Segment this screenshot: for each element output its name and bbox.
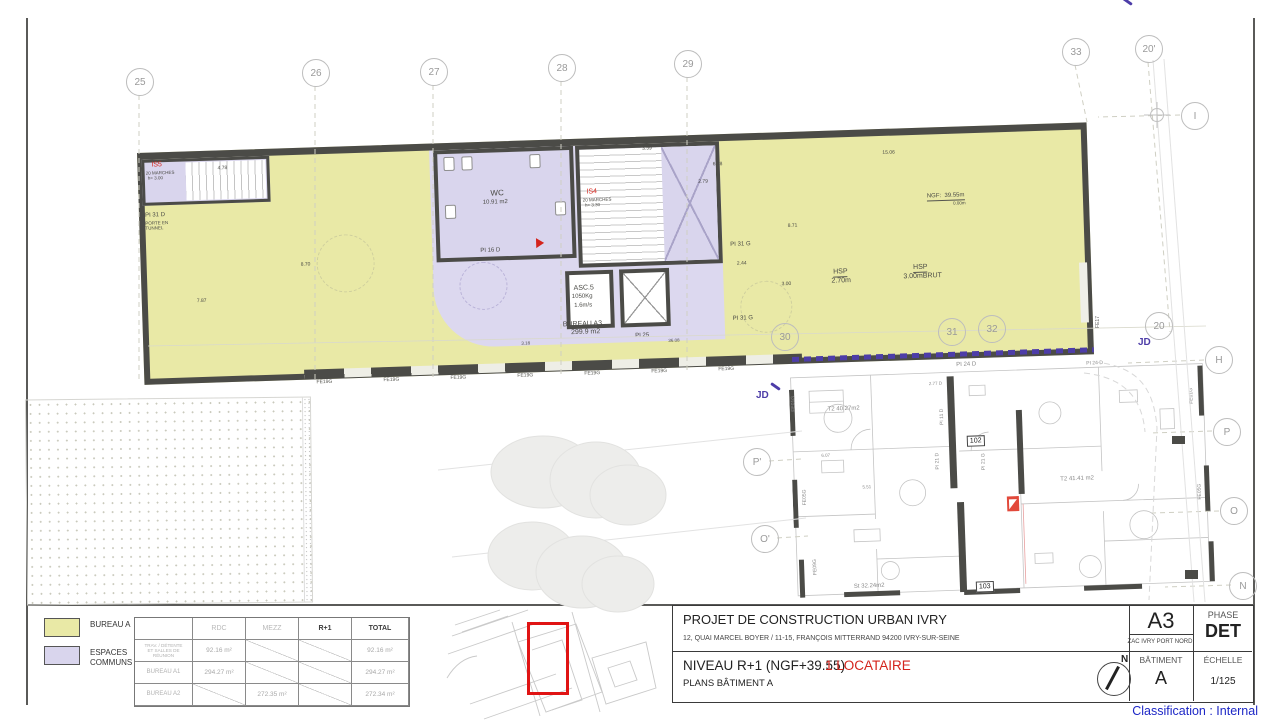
table-cell (193, 684, 246, 706)
plan-annotation: 3.59 (642, 146, 652, 152)
phase-label: PHASE (1193, 610, 1253, 620)
plan-annotation: PI 25 (635, 333, 649, 340)
grid-bubble-26: 26 (302, 59, 330, 87)
table-cell: 272.34 m² (352, 684, 409, 706)
table-row-label: BUREAU A2 (135, 684, 193, 706)
apartment-annotation: 103 (976, 581, 994, 593)
building-a: IS520 MARCHESh= 3.004.78PI 31 DPORTE EN … (137, 122, 1094, 399)
plan-annotation: 1050Kg (572, 293, 593, 300)
apartment-annotation: FE05G (1197, 484, 1203, 500)
apartment-annotation: 6.07 (821, 453, 830, 458)
grid-bubble-32: 32 (978, 315, 1006, 343)
plan-annotation: 8.70 (301, 262, 311, 268)
plan-annotation: 10.91 m2 (483, 199, 508, 207)
legend: BUREAU AESPACES COMMUNS (44, 618, 132, 676)
level-title: NIVEAU R+1 (NGF+39.55) (683, 658, 845, 673)
plan-annotation: 7.87 (197, 299, 207, 305)
red-arrow-marker (536, 238, 544, 248)
jd-arrow (770, 382, 781, 391)
echelle-label: ÉCHELLE (1193, 655, 1253, 665)
plan-annotation: WC (490, 189, 504, 198)
batiment-value: A (1129, 668, 1193, 689)
plan-annotation: HSP (833, 268, 848, 277)
zac-label: ZAC IVRY PORT NORD (1127, 639, 1193, 645)
plan-annotation: 299.9 m2 (571, 328, 600, 337)
phase-value: DET (1193, 621, 1253, 642)
plan-annotation: 15.06 (882, 151, 895, 157)
legend-item: BUREAU A (44, 618, 132, 637)
toilet-icon (443, 157, 454, 171)
tenant-note: 1 LOCATAIRE (825, 658, 911, 673)
plan-annotation: 2.44 (737, 261, 747, 267)
plan-annotation: h= 3.30 (585, 202, 600, 208)
floor-plan-sheet: IS520 MARCHESh= 3.004.78PI 31 DPORTE EN … (0, 0, 1280, 720)
grid-bubble-25: 25 (126, 68, 154, 96)
red-highlight-rect (527, 622, 569, 695)
table-cell (246, 662, 299, 684)
table-cell: 92.16 m² (352, 640, 409, 662)
grid-bubble-31: 31 (938, 318, 966, 346)
toilet-icon (555, 201, 566, 215)
plan-annotation: 3.00mBRUT (903, 272, 942, 281)
sheet-border-right (1253, 18, 1255, 705)
plan-annotation: h= 3.00 (148, 175, 163, 181)
apartment-annotation: 5.51 (862, 484, 871, 489)
plan-annotation: PI 31 G (733, 315, 754, 322)
window-label: FE19G (383, 378, 399, 384)
plan-annotation: 4.78 (217, 166, 227, 172)
table-cell: 294.27 m² (352, 662, 409, 684)
window-label: FE19G (450, 375, 466, 381)
plan-annotation: 1.6m/s (574, 302, 592, 309)
plan-annotation: 8.71 (788, 224, 798, 230)
plan-annotation: PORTE EN TUNNEL (145, 220, 168, 231)
apartment-annotation: FE09G (813, 559, 819, 575)
grid-bubble-I: I (1181, 102, 1209, 130)
grid-bubble-O': O' (751, 525, 779, 553)
plan-annotation: PI 16 D (480, 247, 500, 254)
apartment-annotation: FE01G (791, 396, 797, 412)
window-label: FE19G (718, 367, 734, 373)
apartment-annotation: T2 41.41 m2 (1060, 475, 1094, 483)
table-cell (299, 640, 352, 662)
apartment-linework (788, 347, 1216, 602)
jd-label-left: JD (756, 390, 769, 401)
jd-label-right: JD (1138, 337, 1151, 348)
grid-bubble-H: H (1205, 346, 1233, 374)
grid-bubble-28: 28 (548, 54, 576, 82)
north-compass-icon (1097, 662, 1131, 696)
grid-bubble-N: N (1229, 572, 1257, 600)
apartment-annotation: PI 11 D (940, 409, 946, 425)
batiment-label: BÂTIMENT (1129, 655, 1193, 665)
legend-item-label: ESPACES COMMUNS (90, 646, 132, 667)
table-header: MEZZ (246, 618, 299, 640)
table-header: TOTAL (352, 618, 409, 640)
legend-swatch (44, 618, 80, 637)
apartment-annotation: T2 40.27m2 (828, 406, 860, 414)
apartment-annotation: 102 (967, 435, 985, 447)
area-table: RDCMEZZR+1TOTALTRAV. / DÉTENTE ET SALLES… (134, 617, 410, 707)
grid-bubble-20': 20' (1135, 35, 1163, 63)
apartment-annotation: PI 21 G (981, 453, 987, 470)
table-cell (299, 662, 352, 684)
plan-annotation: IS5 (151, 161, 162, 169)
title-block: PROJET DE CONSTRUCTION URBAN IVRY 12, QU… (672, 605, 1254, 703)
plan-annotation: PI 31 D (145, 212, 165, 219)
sheet-code: A3 (1129, 608, 1193, 634)
classification-label: Classification : Internal (998, 704, 1258, 718)
grid-bubble-33: 33 (1062, 38, 1090, 66)
legend-item: ESPACES COMMUNS (44, 646, 132, 667)
toilet-icon (461, 156, 472, 170)
echelle-value: 1/125 (1193, 676, 1253, 687)
grid-bubble-P: P (1213, 418, 1241, 446)
apartment-annotation: 2.77 D (929, 381, 942, 386)
toilet-icon (445, 205, 456, 219)
plan-annotation: 6.78 (713, 162, 723, 168)
window-label: FE19G (517, 373, 533, 379)
elevator-shaft (619, 268, 671, 328)
plan-annotation: 3.18 (521, 340, 530, 345)
window-label: FE19G (584, 371, 600, 377)
apartment-annotation: FE05G (802, 489, 808, 505)
fe17-label: FE17 (1096, 316, 1102, 328)
plan-annotation: HSP (913, 264, 928, 273)
stair-is4-landing (661, 145, 719, 261)
project-title: PROJET DE CONSTRUCTION URBAN IVRY (683, 612, 947, 627)
table-cell: 92.16 m² (193, 640, 246, 662)
table-row-label: TRAV. / DÉTENTE ET SALLES DE RÉUNION (135, 640, 193, 662)
plan-annotation: 2.79 (698, 180, 708, 186)
plan-annotation: 0.00m (953, 200, 966, 205)
apartment-annotation: St 32.24m2 (854, 583, 885, 591)
crosshair-icon (1144, 102, 1170, 128)
toilet-icon (529, 154, 540, 168)
plan-annotation: 3.00 (782, 282, 792, 288)
table-cell (246, 640, 299, 662)
table-cell: 272.35 m² (246, 684, 299, 706)
legend-item-label: BUREAU A (90, 618, 130, 630)
window-label: FE19G (316, 380, 332, 386)
apartment-block: PI 24 DPI 24 D2.77 DT2 40.27m26.07PI 11 … (788, 347, 1216, 602)
apartment-annotation: FE01G (1189, 388, 1195, 404)
table-header (135, 618, 193, 640)
table-row-label: BUREAU A1 (135, 662, 193, 684)
grid-bubble-P': P' (743, 448, 771, 476)
grid-bubble-29: 29 (674, 50, 702, 78)
plan-annotation: 36.08 (668, 338, 679, 343)
project-address: 12, QUAI MARCEL BOYER / 11-15, FRANÇOIS … (683, 635, 960, 642)
window-label: FE19G (651, 369, 667, 375)
grid-bubble-20: 20 (1145, 312, 1173, 340)
table-cell (299, 684, 352, 706)
plan-subtitle: PLANS BÂTIMENT A (683, 678, 773, 689)
terrace-dotted-area (25, 397, 313, 606)
plan-annotation: PI 31 G (730, 241, 751, 248)
apartment-annotation: PI 21 D (935, 453, 941, 470)
plan-annotation: ASC.5 (573, 284, 593, 292)
jd-arrow (1122, 0, 1133, 6)
plan-annotation: IS4 (586, 188, 597, 196)
table-cell: 294.27 m² (193, 662, 246, 684)
plan-annotation: 2.70m (831, 277, 851, 285)
legend-swatch (44, 646, 80, 665)
table-header: RDC (193, 618, 246, 640)
table-header: R+1 (299, 618, 352, 640)
grid-bubble-O: O (1220, 497, 1248, 525)
grid-bubble-30: 30 (771, 323, 799, 351)
grid-bubble-27: 27 (420, 58, 448, 86)
